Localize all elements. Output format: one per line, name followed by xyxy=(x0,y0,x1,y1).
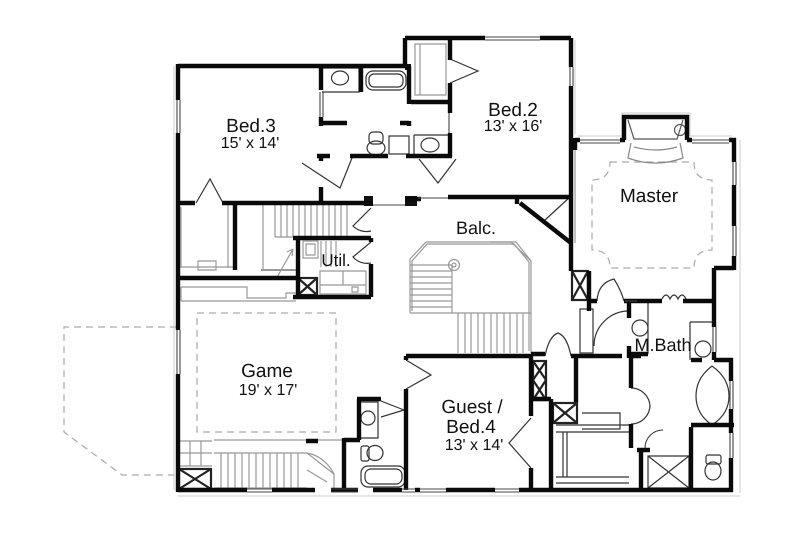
svg-text:Guest /: Guest / xyxy=(441,397,503,418)
svg-text:Bed.3: Bed.3 xyxy=(226,116,276,137)
svg-text:Bed.4: Bed.4 xyxy=(446,417,496,438)
svg-text:19' x 17': 19' x 17' xyxy=(239,382,298,399)
svg-text:Util.: Util. xyxy=(321,251,350,270)
svg-text:13' x 14': 13' x 14' xyxy=(445,437,504,454)
svg-text:Balc.: Balc. xyxy=(456,218,496,238)
svg-text:M.Bath: M.Bath xyxy=(634,335,691,355)
svg-text:13' x 16': 13' x 16' xyxy=(484,118,543,135)
svg-text:Master: Master xyxy=(620,186,679,207)
svg-text:Game: Game xyxy=(241,361,293,382)
svg-text:15' x 14': 15' x 14' xyxy=(221,135,280,152)
